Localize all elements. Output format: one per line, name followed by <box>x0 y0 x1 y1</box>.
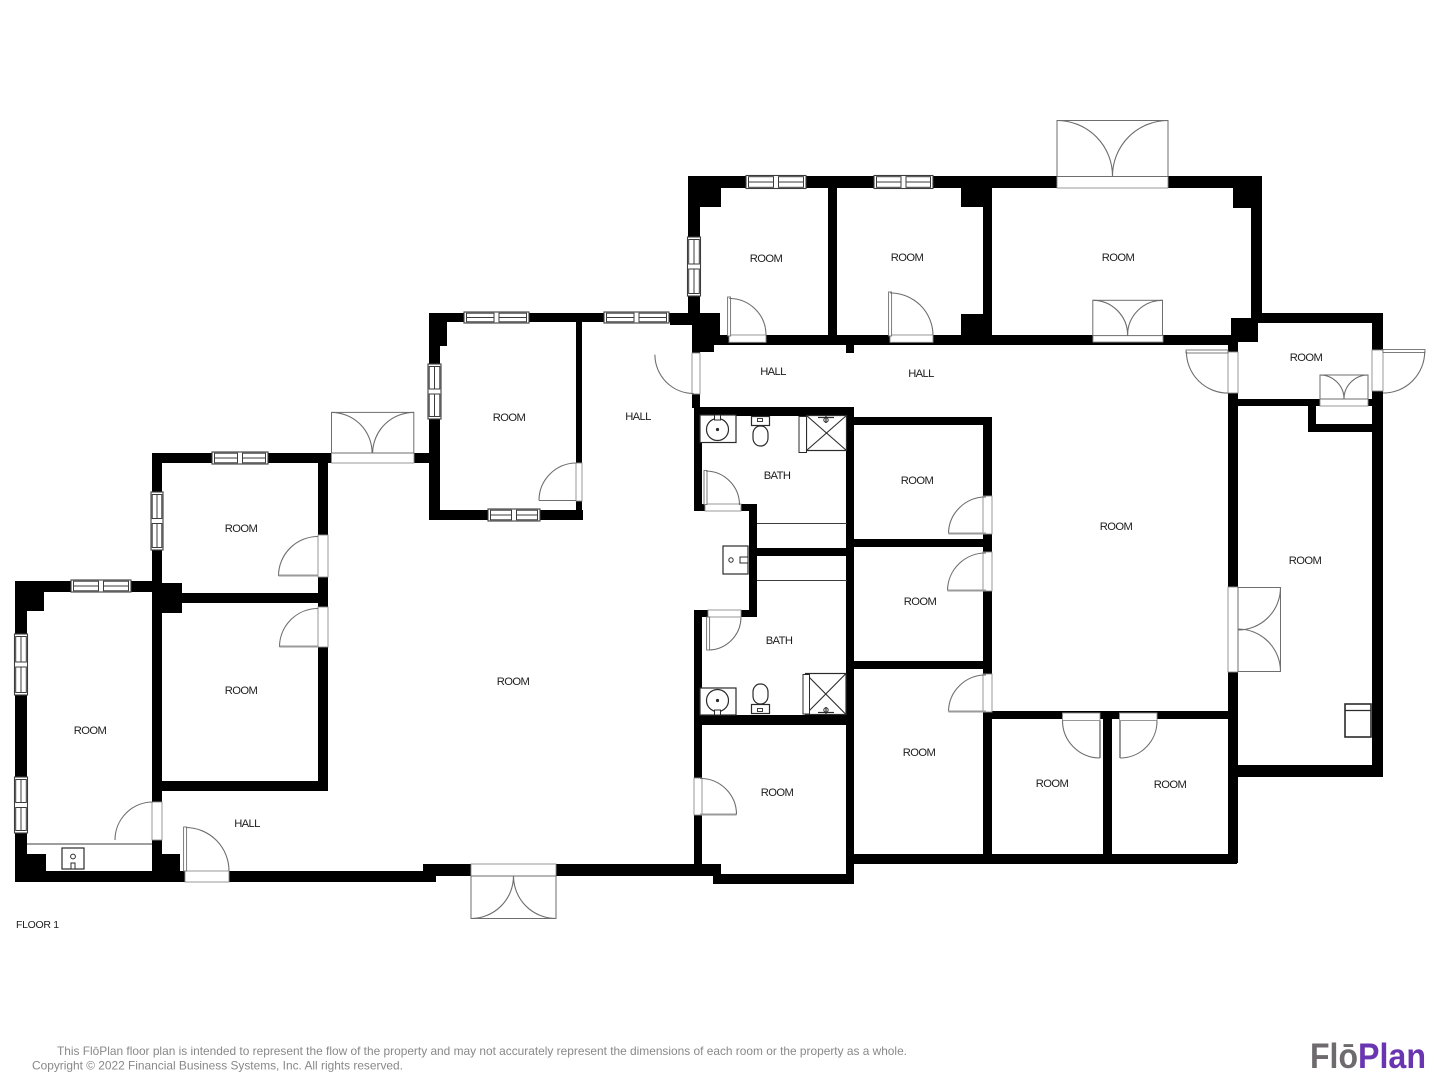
svg-text:ROOM: ROOM <box>903 747 936 759</box>
svg-text:ROOM: ROOM <box>74 725 107 737</box>
svg-text:HALL: HALL <box>234 818 260 830</box>
svg-text:ROOM: ROOM <box>761 787 794 799</box>
svg-text:HALL: HALL <box>625 411 651 423</box>
svg-text:ROOM: ROOM <box>1289 555 1322 567</box>
svg-text:Plan: Plan <box>1358 1036 1426 1076</box>
svg-text:ROOM: ROOM <box>225 685 258 697</box>
svg-text:ROOM: ROOM <box>497 676 530 688</box>
svg-text:Flō: Flō <box>1310 1036 1358 1076</box>
svg-text:FLOOR 1: FLOOR 1 <box>16 919 59 931</box>
svg-text:ROOM: ROOM <box>891 252 924 264</box>
svg-text:BATH: BATH <box>766 635 793 647</box>
svg-text:ROOM: ROOM <box>225 523 258 535</box>
svg-text:ROOM: ROOM <box>1036 778 1069 790</box>
svg-text:ROOM: ROOM <box>493 412 526 424</box>
svg-text:This FlōPlan floor plan is int: This FlōPlan floor plan is intended to r… <box>57 1044 907 1058</box>
svg-text:ROOM: ROOM <box>1154 779 1187 791</box>
svg-text:ROOM: ROOM <box>1102 252 1135 264</box>
svg-text:ROOM: ROOM <box>904 596 937 608</box>
svg-text:ROOM: ROOM <box>750 253 783 265</box>
svg-text:HALL: HALL <box>760 366 786 378</box>
svg-text:HALL: HALL <box>908 368 934 380</box>
svg-text:Copyright © 2022 Financial Bus: Copyright © 2022 Financial Business Syst… <box>32 1059 403 1073</box>
svg-text:ROOM: ROOM <box>901 475 934 487</box>
svg-text:ROOM: ROOM <box>1100 521 1133 533</box>
svg-text:ROOM: ROOM <box>1290 352 1323 364</box>
svg-text:BATH: BATH <box>764 470 791 482</box>
